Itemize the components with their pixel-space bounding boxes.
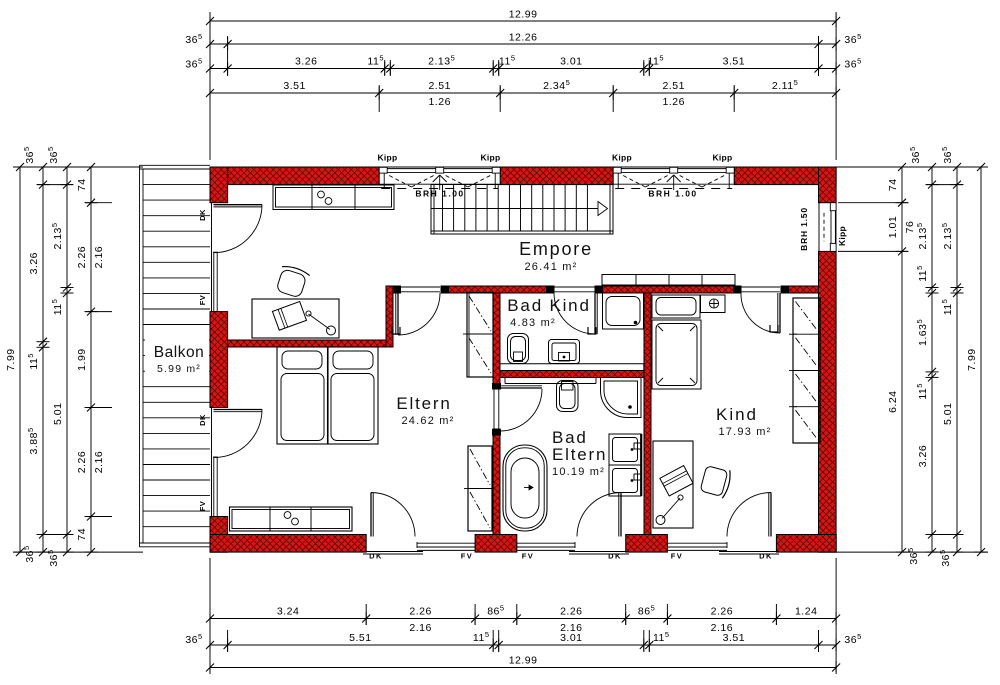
svg-text:3.26: 3.26: [28, 252, 40, 274]
svg-text:2.51: 2.51: [428, 80, 450, 92]
svg-text:DK: DK: [608, 552, 622, 561]
svg-text:26.41 m²: 26.41 m²: [524, 261, 577, 273]
svg-text:5.01: 5.01: [942, 403, 954, 425]
svg-text:3.51: 3.51: [723, 632, 745, 644]
svg-text:Kipp: Kipp: [480, 153, 500, 163]
svg-text:10.19 m²: 10.19 m²: [552, 466, 605, 478]
svg-text:3.51: 3.51: [723, 56, 745, 68]
svg-text:Kipp: Kipp: [712, 153, 732, 163]
svg-text:7.99: 7.99: [5, 348, 17, 370]
svg-text:74: 74: [76, 528, 88, 541]
svg-text:FV: FV: [671, 552, 684, 561]
svg-text:BRH 1.00: BRH 1.00: [648, 189, 697, 199]
svg-text:Kipp: Kipp: [612, 153, 632, 163]
svg-text:2.16: 2.16: [93, 246, 105, 268]
svg-text:6.24: 6.24: [887, 390, 899, 412]
svg-text:1.26: 1.26: [662, 96, 684, 108]
svg-text:DK: DK: [198, 414, 207, 426]
svg-text:Balkon: Balkon: [154, 344, 204, 361]
svg-text:Empore: Empore: [519, 239, 593, 259]
svg-text:74: 74: [887, 178, 899, 191]
svg-text:Eltern: Eltern: [396, 394, 451, 413]
svg-text:Kipp: Kipp: [377, 153, 397, 163]
svg-text:3.24: 3.24: [277, 606, 299, 618]
svg-text:7.99: 7.99: [966, 348, 978, 370]
svg-text:DK: DK: [198, 209, 207, 221]
svg-text:FV: FV: [461, 552, 474, 561]
svg-text:DK: DK: [759, 552, 773, 561]
svg-text:24.62 m²: 24.62 m²: [401, 415, 454, 427]
svg-text:4.83 m²: 4.83 m²: [510, 317, 556, 329]
svg-text:2.51: 2.51: [662, 80, 684, 92]
svg-text:DK: DK: [369, 552, 383, 561]
svg-text:FV: FV: [522, 552, 535, 561]
svg-text:FV: FV: [198, 295, 207, 306]
svg-text:3.26: 3.26: [295, 56, 317, 68]
svg-text:3.01: 3.01: [560, 56, 582, 68]
svg-text:3.01: 3.01: [560, 632, 582, 644]
svg-text:5.01: 5.01: [52, 403, 64, 425]
svg-text:1.24: 1.24: [795, 606, 817, 618]
svg-text:1.26: 1.26: [428, 96, 450, 108]
svg-text:5.99 m²: 5.99 m²: [157, 363, 201, 375]
svg-text:Bad Kind: Bad Kind: [507, 296, 590, 315]
svg-text:FV: FV: [198, 501, 207, 512]
svg-text:2.26: 2.26: [560, 606, 582, 618]
svg-text:BRH 1.50: BRH 1.50: [799, 207, 809, 251]
svg-text:Eltern: Eltern: [552, 445, 607, 464]
svg-text:3.26: 3.26: [917, 445, 929, 467]
svg-text:2.26: 2.26: [76, 246, 88, 268]
svg-text:2.26: 2.26: [711, 606, 733, 618]
svg-text:2.26: 2.26: [409, 606, 431, 618]
svg-text:17.93 m²: 17.93 m²: [718, 426, 771, 438]
svg-text:74: 74: [76, 178, 88, 191]
svg-text:5.51: 5.51: [349, 632, 371, 644]
svg-text:2.16: 2.16: [409, 622, 431, 634]
svg-text:12.26: 12.26: [509, 32, 538, 44]
svg-text:3.51: 3.51: [283, 80, 305, 92]
svg-text:12.99: 12.99: [509, 655, 538, 667]
svg-text:12.99: 12.99: [509, 9, 538, 21]
svg-text:2.16: 2.16: [93, 451, 105, 473]
svg-text:1.99: 1.99: [76, 348, 88, 370]
svg-text:2.26: 2.26: [76, 451, 88, 473]
svg-text:BRH 1.00: BRH 1.00: [415, 189, 464, 199]
svg-text:Kipp: Kipp: [837, 226, 847, 246]
svg-text:Kind: Kind: [716, 405, 758, 424]
svg-text:1.01: 1.01: [887, 216, 899, 238]
